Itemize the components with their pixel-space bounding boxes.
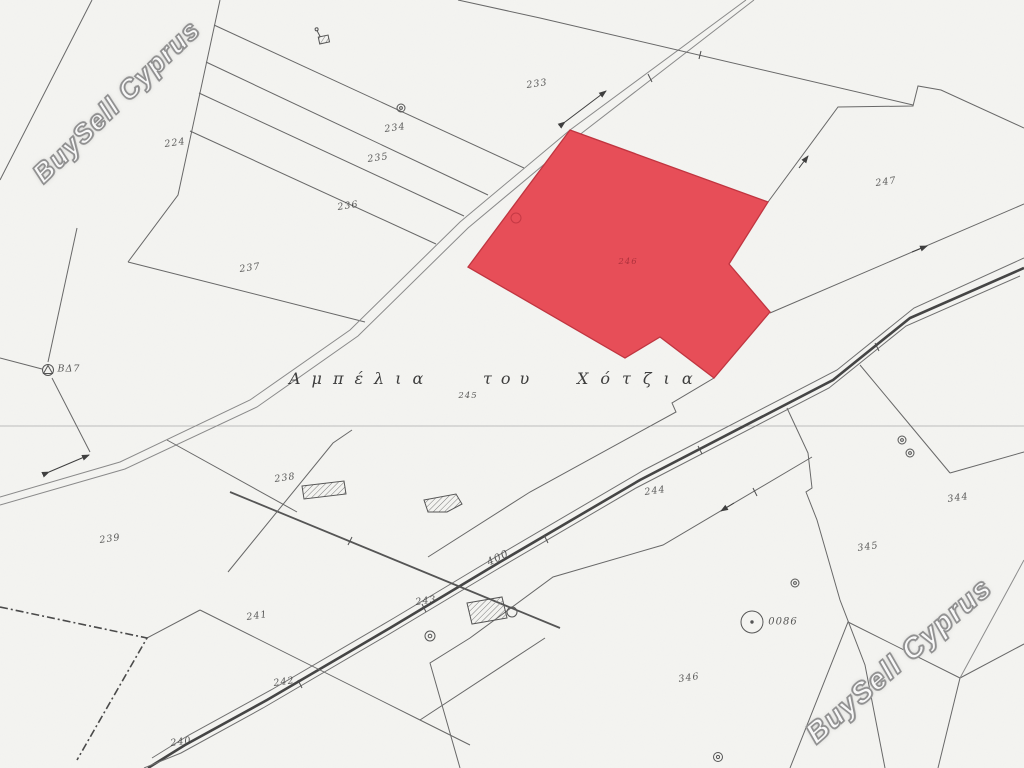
parcel-label-245: 245 bbox=[458, 391, 477, 401]
cadastral-map-canvas[interactable]: ΑμπέλιατουΧότζια 22423323423523623723823… bbox=[0, 0, 1024, 768]
parcel-label-246: 246 bbox=[618, 257, 637, 267]
toponym-word: Αμπέλια bbox=[289, 369, 434, 388]
toponym-word: Χότζια bbox=[577, 369, 705, 388]
toponym-word: του bbox=[483, 369, 538, 388]
parcel-label-0086: 0086 bbox=[768, 617, 797, 628]
parcel-label-ΒΔ7: ΒΔ7 bbox=[58, 364, 81, 375]
